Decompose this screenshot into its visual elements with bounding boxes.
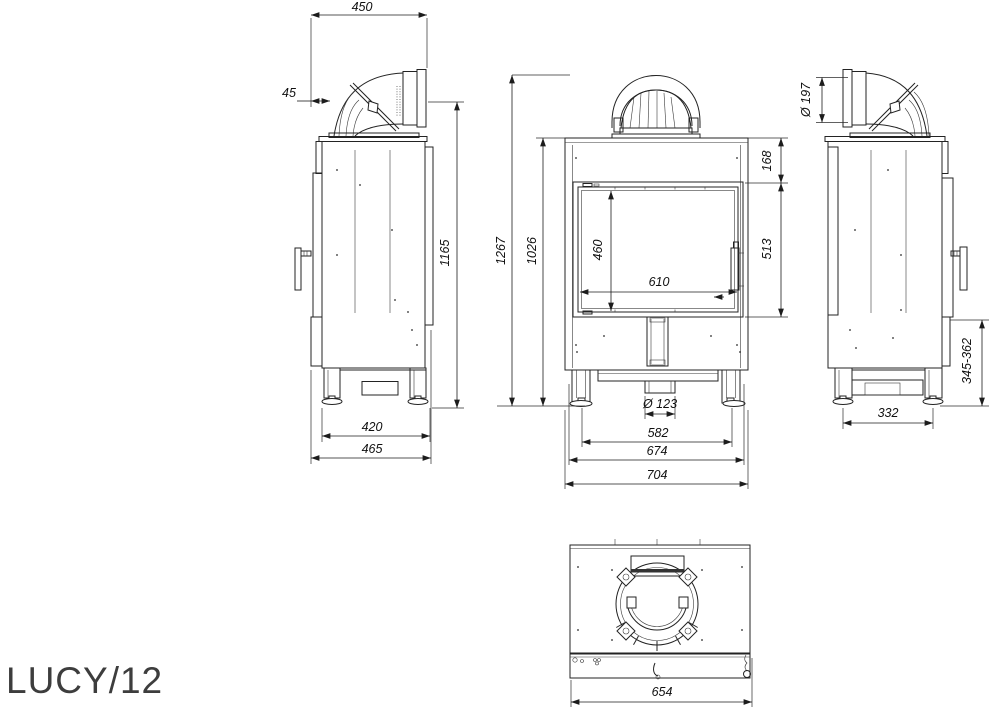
dim-513: 513 bbox=[760, 239, 774, 260]
technical-drawing-page: 450 45 1165 420 465 bbox=[0, 0, 999, 715]
adjustable-foot bbox=[408, 399, 428, 405]
dim-654: 654 bbox=[652, 685, 673, 699]
adjustable-foot bbox=[322, 399, 342, 405]
pipe-clamp bbox=[890, 101, 900, 113]
chain-pull bbox=[745, 655, 747, 671]
dim-1026: 1026 bbox=[525, 237, 539, 265]
drawing-canvas: 450 45 1165 420 465 bbox=[0, 0, 999, 715]
control-lever bbox=[647, 317, 668, 366]
screw bbox=[581, 660, 584, 663]
dim-123: Ø 123 bbox=[642, 397, 677, 411]
front-view: 1267 1026 168 513 460 610 Ø 123 582 bbox=[494, 75, 788, 489]
dim-610: 610 bbox=[649, 275, 670, 289]
dim-345-362: 345-362 bbox=[960, 338, 974, 384]
dim-674: 674 bbox=[647, 444, 668, 458]
stove-body-left bbox=[311, 137, 433, 369]
door-handle-left bbox=[295, 248, 311, 290]
legs-right bbox=[833, 368, 943, 405]
adjustable-foot bbox=[723, 401, 745, 407]
pipe-clamp bbox=[368, 101, 378, 113]
dim-332: 332 bbox=[878, 406, 899, 420]
dimensions-top: 654 bbox=[571, 658, 752, 707]
dim-420: 420 bbox=[362, 420, 383, 434]
left-side-view: 450 45 1165 420 465 bbox=[282, 0, 464, 464]
air-inlet-stub bbox=[645, 381, 675, 393]
flue-elbow-right bbox=[843, 70, 930, 138]
dim-45: 45 bbox=[282, 86, 296, 100]
screw bbox=[573, 658, 577, 662]
dimensions-front: 1267 1026 168 513 460 610 Ø 123 582 bbox=[494, 75, 788, 489]
dim-450: 450 bbox=[352, 0, 373, 14]
lower-band-front bbox=[576, 317, 741, 366]
dim-460: 460 bbox=[591, 240, 605, 261]
dim-465: 465 bbox=[362, 442, 383, 456]
dim-197: Ø 197 bbox=[799, 82, 813, 118]
flue-elbow-left bbox=[329, 70, 426, 138]
dim-704: 704 bbox=[647, 468, 668, 482]
hinge-top bbox=[583, 184, 592, 187]
stove-body-right bbox=[825, 137, 953, 369]
legs-left bbox=[322, 368, 428, 405]
latch-hook bbox=[654, 663, 658, 676]
dim-1267: 1267 bbox=[494, 236, 508, 265]
dim-582: 582 bbox=[648, 426, 669, 440]
dim-168: 168 bbox=[760, 151, 774, 172]
adjustable-foot bbox=[923, 399, 943, 405]
adjustable-foot bbox=[570, 401, 592, 407]
adjustable-foot bbox=[833, 399, 853, 405]
right-side-view: Ø 197 345-362 332 bbox=[799, 70, 989, 430]
top-view: 654 bbox=[570, 539, 752, 707]
flue-collar-top bbox=[616, 556, 698, 651]
flue-dome bbox=[612, 76, 700, 139]
model-title: LUCY/12 bbox=[6, 660, 163, 702]
front-edge-strip bbox=[570, 654, 751, 679]
dimensions-left: 450 45 1165 420 465 bbox=[282, 0, 464, 464]
dim-1165: 1165 bbox=[438, 240, 452, 267]
